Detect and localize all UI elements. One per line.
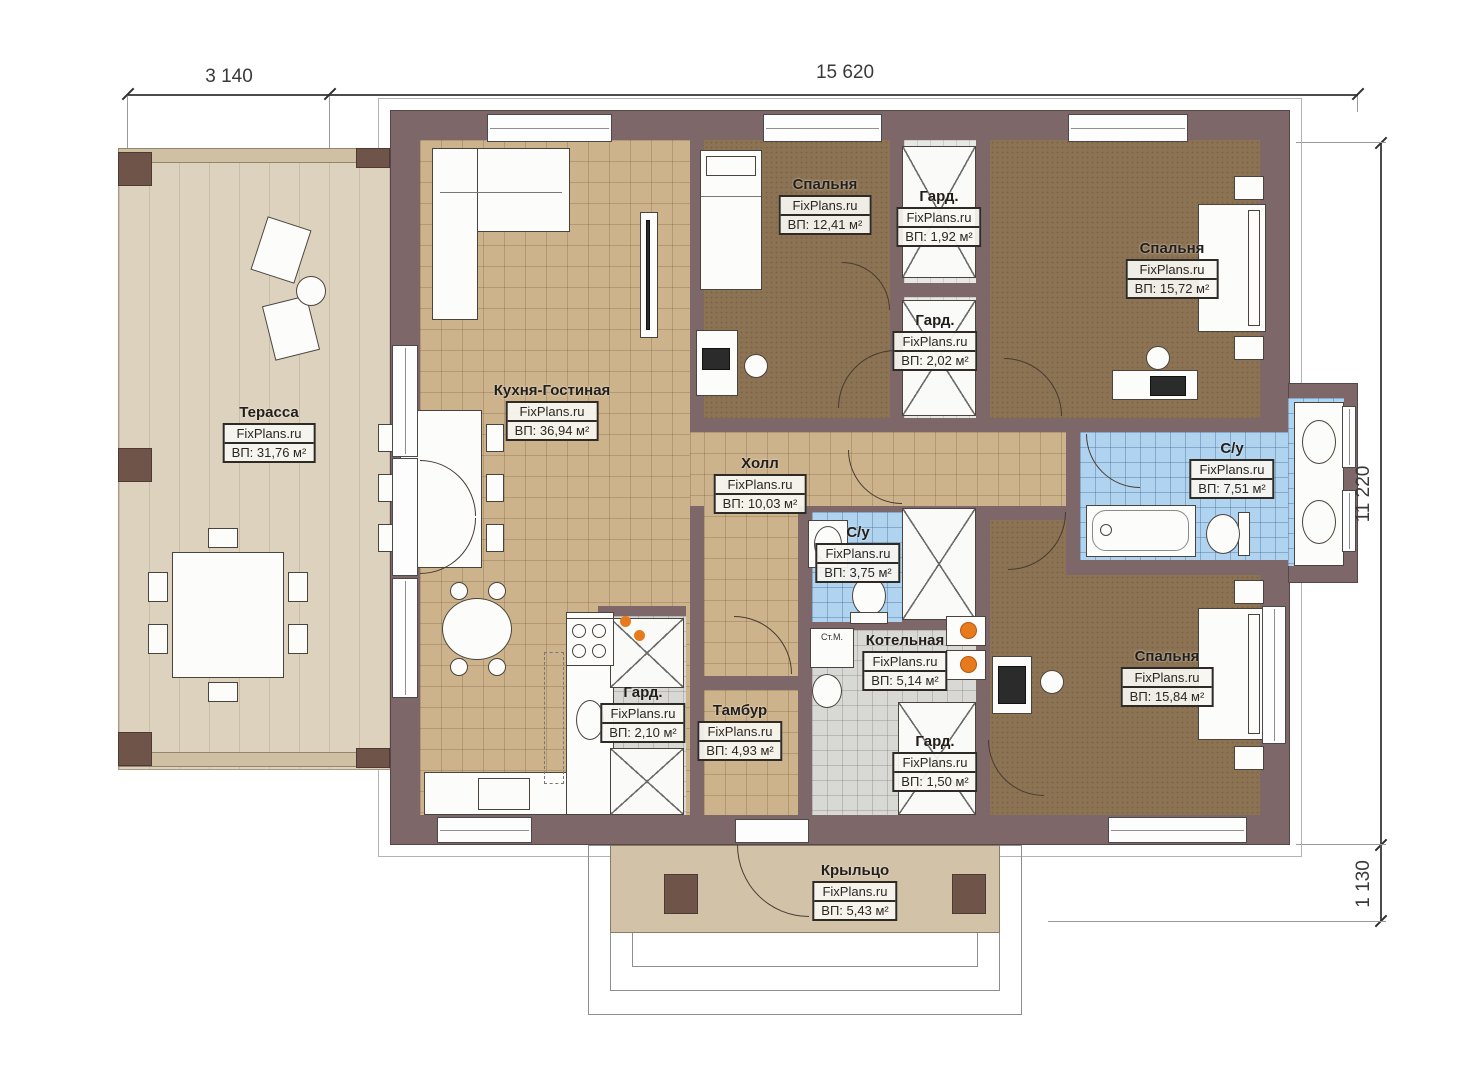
fridge-outline bbox=[544, 652, 564, 784]
dishwasher bbox=[478, 778, 530, 810]
nightstand bbox=[1234, 746, 1264, 770]
terrace-post bbox=[356, 148, 390, 168]
desk-monitor bbox=[1150, 376, 1186, 396]
dimension-line-top bbox=[128, 94, 1358, 96]
round-table bbox=[442, 598, 512, 660]
utility-sink bbox=[812, 674, 842, 708]
room-label-bedroom-2: Спальня FixPlans.ru ВП: 15,72 м² bbox=[1126, 240, 1219, 299]
bed-pillow bbox=[706, 156, 756, 176]
desk-chair bbox=[1040, 670, 1064, 694]
wardrobe-cabinet bbox=[610, 618, 684, 688]
room-label-wardrobe-3: Гард. FixPlans.ru ВП: 2,10 м² bbox=[600, 684, 685, 743]
terrace-post bbox=[118, 448, 152, 482]
room-label-hall: Холл FixPlans.ru ВП: 10,03 м² bbox=[714, 455, 807, 514]
toilet-tank bbox=[850, 612, 888, 624]
terrace-parapet-top bbox=[118, 148, 392, 163]
extension-line bbox=[1357, 96, 1358, 112]
floor-opening-kitchen-hall bbox=[690, 432, 704, 506]
tv-screen bbox=[646, 220, 650, 330]
room-label-wardrobe-4: Гард. FixPlans.ru ВП: 1,50 м² bbox=[892, 733, 977, 792]
dimension-label-top-main: 15 620 bbox=[816, 62, 874, 84]
chair bbox=[450, 658, 468, 676]
terrace-chair bbox=[148, 624, 168, 654]
nightstand bbox=[1234, 176, 1264, 200]
washing-machine-label: Ст.М. bbox=[811, 633, 853, 642]
terrace-chair bbox=[208, 528, 238, 548]
room-label-boiler-room: Котельная FixPlans.ru ВП: 5,14 м² bbox=[862, 632, 947, 691]
toilet-bowl bbox=[1206, 514, 1240, 554]
washing-machine: Ст.М. bbox=[810, 628, 854, 668]
window bbox=[1068, 114, 1188, 142]
room-label-wardrobe-1: Гард. FixPlans.ru ВП: 1,92 м² bbox=[896, 188, 981, 247]
sink bbox=[1302, 500, 1336, 544]
terrace-side-table bbox=[296, 276, 326, 306]
bathtub-drain bbox=[1100, 524, 1112, 536]
dimension-label-top-left: 3 140 bbox=[205, 66, 253, 88]
extension-line bbox=[1048, 921, 1386, 922]
desk-monitor bbox=[998, 666, 1026, 704]
dimension-line-right bbox=[1380, 143, 1382, 845]
dimension-label-right-main: 11 220 bbox=[1353, 466, 1375, 523]
nightstand bbox=[1234, 580, 1264, 604]
window bbox=[1108, 817, 1247, 843]
terrace-post bbox=[356, 748, 390, 768]
desk-chair bbox=[1146, 346, 1170, 370]
extension-line bbox=[1296, 844, 1386, 845]
room-label-bathroom-2: С/у FixPlans.ru ВП: 3,75 м² bbox=[815, 524, 900, 583]
room-label-porch: Крыльцо FixPlans.ru ВП: 5,43 м² bbox=[812, 862, 897, 921]
window bbox=[392, 345, 418, 457]
stove-burner bbox=[592, 644, 606, 658]
chair bbox=[486, 524, 504, 552]
window bbox=[763, 114, 882, 142]
bed-blanket-line bbox=[701, 196, 761, 197]
chair bbox=[450, 582, 468, 600]
bed-pillow bbox=[1248, 614, 1260, 734]
stove-burner bbox=[572, 644, 586, 658]
terrace-post bbox=[118, 152, 152, 186]
room-label-terrace: Терасса FixPlans.ru ВП: 31,76 м² bbox=[223, 404, 316, 463]
window bbox=[487, 114, 612, 142]
window bbox=[1262, 606, 1286, 744]
wardrobe-cabinet bbox=[610, 748, 684, 815]
room-label-wardrobe-2: Гард. FixPlans.ru ВП: 2,02 м² bbox=[892, 312, 977, 371]
terrace-dining-table bbox=[172, 552, 284, 678]
stove-indicator bbox=[620, 616, 631, 627]
porch-post bbox=[664, 874, 698, 914]
extension-line bbox=[1296, 142, 1386, 143]
extension-line bbox=[329, 96, 330, 148]
terrace-parapet-bottom bbox=[118, 752, 392, 767]
sink bbox=[1302, 420, 1336, 464]
room-label-vestibule: Тамбур FixPlans.ru ВП: 4,93 м² bbox=[697, 702, 782, 761]
stove-indicator bbox=[634, 630, 645, 641]
extension-line bbox=[127, 96, 128, 148]
window bbox=[1342, 406, 1356, 468]
terrace-door-opening bbox=[392, 458, 418, 576]
terrace-chair bbox=[148, 572, 168, 602]
terrace-chair bbox=[288, 624, 308, 654]
nightstand bbox=[1234, 336, 1264, 360]
terrace-post bbox=[118, 732, 152, 766]
sofa-chaise bbox=[432, 148, 478, 320]
bed-pillow bbox=[1248, 210, 1260, 326]
terrace-chair bbox=[288, 572, 308, 602]
desk-chair bbox=[744, 354, 768, 378]
dimension-line-porch bbox=[1380, 845, 1382, 922]
room-label-bedroom-3: Спальня FixPlans.ru ВП: 15,84 м² bbox=[1121, 648, 1214, 707]
desk-monitor bbox=[702, 348, 730, 370]
boiler-burner-icon bbox=[960, 656, 977, 673]
window bbox=[437, 817, 532, 843]
chair bbox=[488, 658, 506, 676]
porch-post bbox=[952, 874, 986, 914]
chair bbox=[488, 582, 506, 600]
entrance-door-opening bbox=[735, 819, 809, 843]
chair bbox=[486, 474, 504, 502]
sofa-cushion-line bbox=[440, 192, 562, 193]
boiler-burner-icon bbox=[960, 622, 977, 639]
terrace-chair bbox=[208, 682, 238, 702]
room-label-bedroom-1: Спальня FixPlans.ru ВП: 12,41 м² bbox=[779, 176, 872, 235]
room-label-kitchen-living: Кухня-Гостиная FixPlans.ru ВП: 36,94 м² bbox=[494, 382, 611, 441]
room-label-bathroom-1: С/у FixPlans.ru ВП: 7,51 м² bbox=[1189, 440, 1274, 499]
shower-cabin bbox=[902, 508, 976, 620]
stove-burner bbox=[572, 624, 586, 638]
window bbox=[392, 578, 418, 698]
stove-burner bbox=[592, 624, 606, 638]
floor-plan: 3 140 15 620 11 220 1 130 bbox=[0, 0, 1473, 1080]
dimension-label-right-porch: 1 130 bbox=[1353, 860, 1375, 908]
